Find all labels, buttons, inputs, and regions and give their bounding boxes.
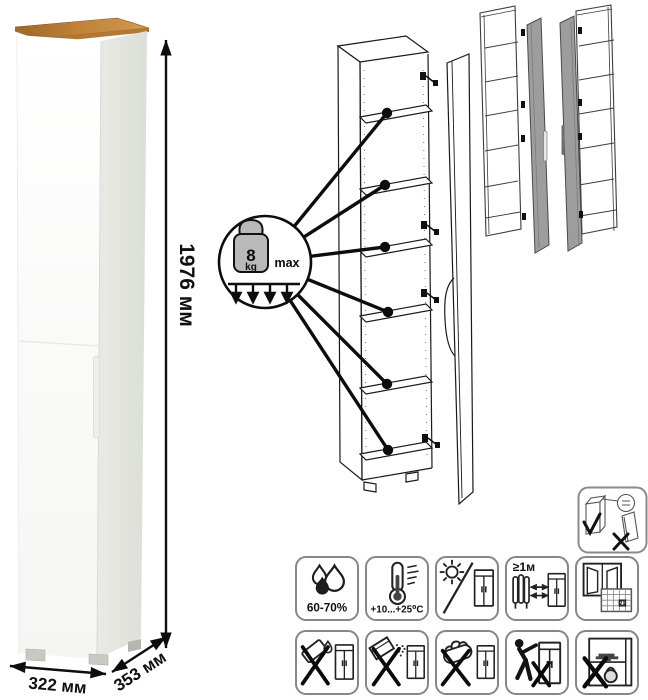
wardrobe-icon [477, 646, 494, 679]
door-handle-groove [562, 125, 565, 155]
person-icon [515, 639, 536, 679]
care-icon-no-direct-sunlight [435, 556, 499, 621]
kettlebell-icon [605, 668, 617, 683]
left-side-panel [338, 46, 362, 480]
shelf-load-diagram: 8 kg max [210, 10, 480, 510]
door-handle-groove [94, 356, 100, 438]
shelf [360, 105, 432, 123]
distance-label: ≥1м [513, 560, 535, 574]
door-variants-drawing [475, 3, 648, 265]
hinge-icon [420, 72, 438, 86]
thermometer-icon [390, 563, 419, 604]
calendar-day: 21 [620, 601, 626, 607]
product-sheet: 1976 мм 322 мм 353 мм [0, 0, 648, 700]
load-unit: kg [245, 262, 257, 273]
sun-icon [440, 560, 464, 584]
shelf [360, 376, 432, 394]
variant-door-left [560, 5, 617, 251]
care-icon-no-dragging [505, 630, 569, 695]
cabinet-foot [89, 654, 108, 665]
care-icon-no-aggressive-liquids [295, 630, 359, 695]
care-icon-grid: 60-70% +10...+25⁰C [295, 556, 639, 695]
door-handle-groove [544, 131, 548, 161]
wall-bracket-detail-icon [618, 495, 635, 512]
double-arrow-icon [531, 585, 547, 598]
shelf-pointer-dots [380, 108, 393, 455]
care-icon-no-overloading [575, 630, 639, 695]
temperature-label: +10...+25⁰C [371, 604, 424, 615]
wardrobe-icon [475, 570, 494, 606]
width-dimension-label: 322 мм [28, 674, 88, 698]
water-drops-icon [313, 566, 344, 595]
variant-door-right [480, 6, 549, 253]
cabinet-foot [26, 649, 45, 661]
care-icon-temperature: +10...+25⁰C [365, 556, 429, 621]
wardrobe-icon [407, 646, 424, 679]
care-icon-distance-from-heat: ≥1м [505, 556, 569, 621]
hinge-icon [521, 29, 526, 220]
care-icon-no-rough-scrubbing [435, 630, 499, 695]
cabinet-side-panel [97, 31, 147, 659]
open-door [447, 54, 473, 504]
cabinet-body [15, 18, 149, 665]
foot [406, 472, 418, 482]
wardrobe-icon [548, 574, 565, 607]
radiator-icon [513, 575, 529, 609]
cabinet-photo: 1976 мм 322 мм 353 мм [0, 0, 200, 700]
anti-tip-fixing-icon [577, 486, 648, 554]
weight-icon-handle [239, 220, 262, 235]
load-limit-badge: 8 kg max [219, 216, 311, 308]
foot [364, 482, 376, 492]
cabinet-front-door [17, 35, 101, 659]
care-icon-no-abrasive-powders [365, 630, 429, 695]
calendar-icon: 21 [601, 589, 631, 612]
height-dimension-label: 1976 мм [175, 243, 198, 327]
care-icon-humidity: 60-70% [295, 556, 359, 621]
wardrobe-icon [335, 645, 353, 679]
load-qualifier: max [274, 256, 299, 270]
care-icon-ventilation: 21 [575, 556, 639, 621]
open-cabinet-drawing [338, 36, 473, 504]
bottom-panel [360, 442, 432, 460]
humidity-label: 60-70% [307, 601, 348, 614]
width-dimension-arrow [10, 666, 106, 674]
